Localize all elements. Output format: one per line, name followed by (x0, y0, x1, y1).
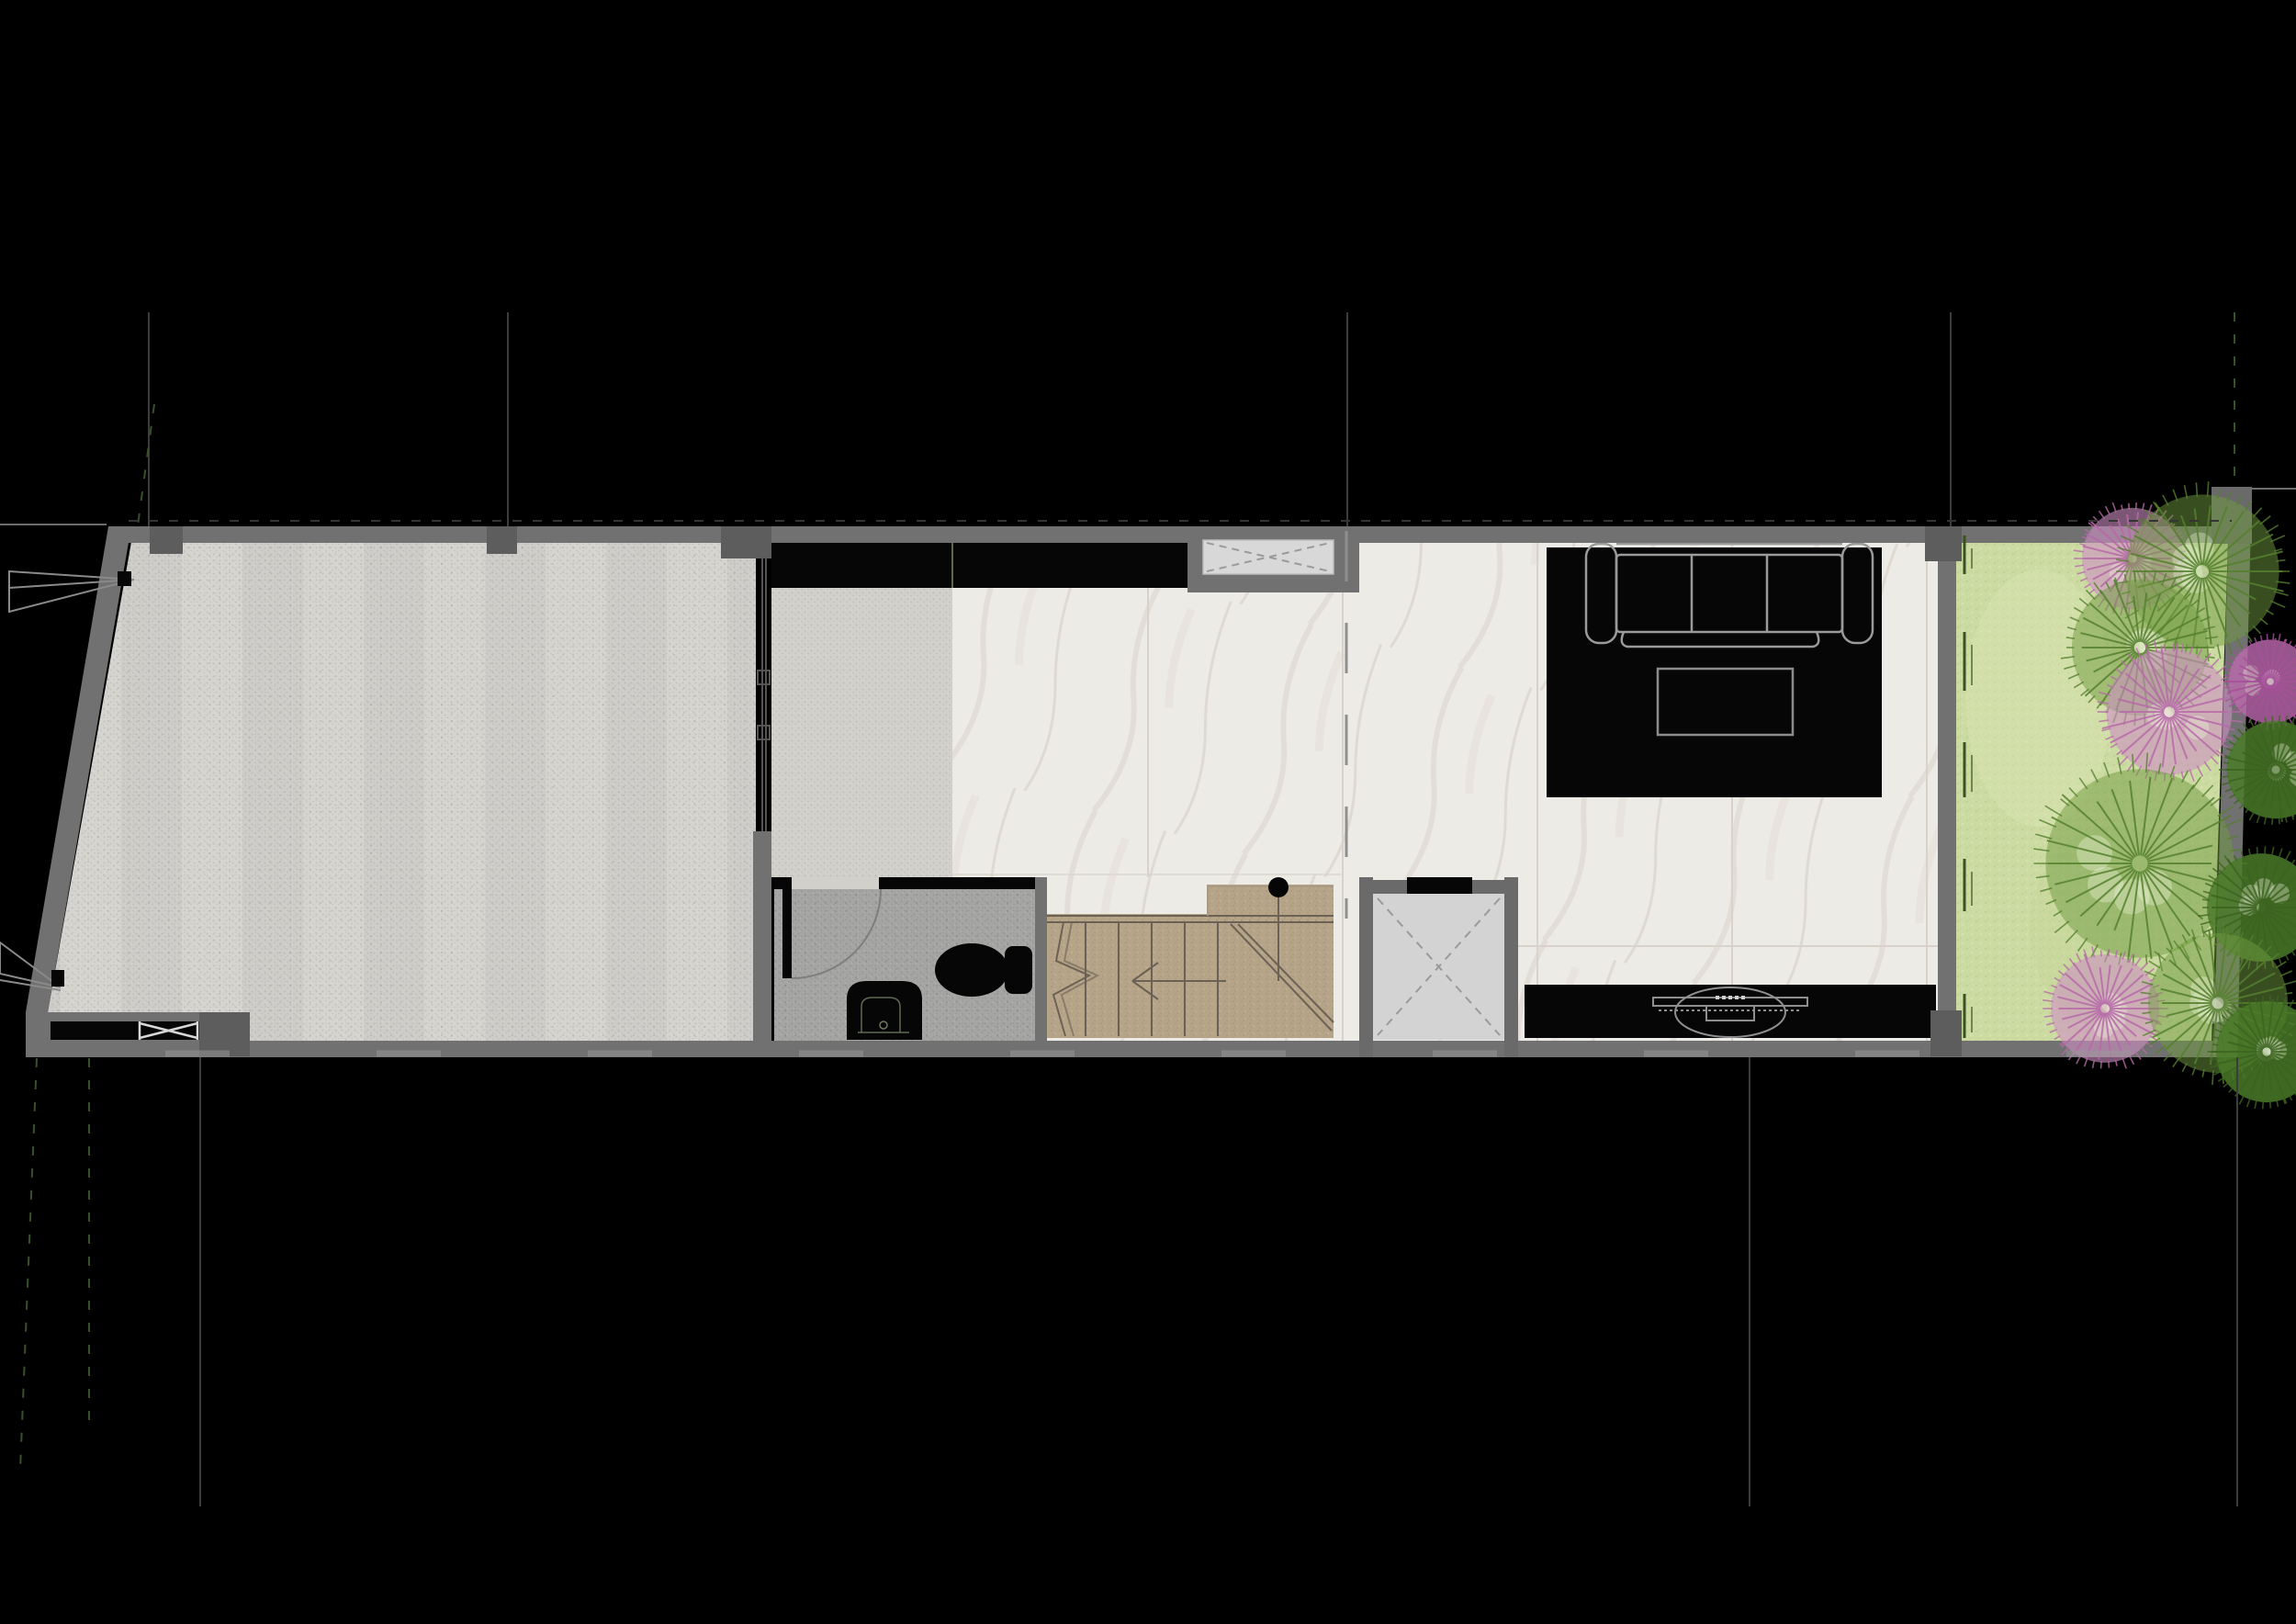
room-driveway-court (48, 542, 756, 1041)
wash-basin (847, 981, 922, 1040)
sliding-gate-symbol (51, 1021, 199, 1040)
coffee-table (1658, 669, 1793, 735)
wall-top (129, 526, 2232, 543)
door-leaf (782, 889, 792, 978)
elevator-wall-right (1504, 877, 1518, 1057)
newel-post (1268, 877, 1289, 897)
sliding-door-track (758, 558, 770, 831)
built-in-counter (771, 542, 1189, 588)
wall-bath-right (1035, 877, 1047, 1041)
room-entry-hall (771, 588, 952, 877)
floor-plan-drawing: ground floor architectural plan (0, 0, 2296, 1624)
toilet (935, 943, 1032, 997)
gate-post (51, 970, 64, 987)
column (1925, 526, 1962, 561)
bath-door-opening (792, 877, 879, 889)
wall-garden-divider (1938, 526, 1956, 1056)
gate-post (118, 571, 131, 586)
column (150, 526, 183, 554)
column (1930, 1010, 1962, 1056)
floor-plan-canvas: ground floor architectural plan (0, 0, 2296, 1624)
column (721, 526, 771, 558)
elevator-door-gap (1407, 877, 1472, 894)
wall-hall-divider-lower (753, 831, 771, 1041)
elevator-wall-left (1359, 877, 1373, 1057)
column (199, 1012, 250, 1056)
column (487, 526, 517, 554)
skylight (1203, 540, 1334, 574)
elevator-cab (1373, 877, 1504, 1040)
